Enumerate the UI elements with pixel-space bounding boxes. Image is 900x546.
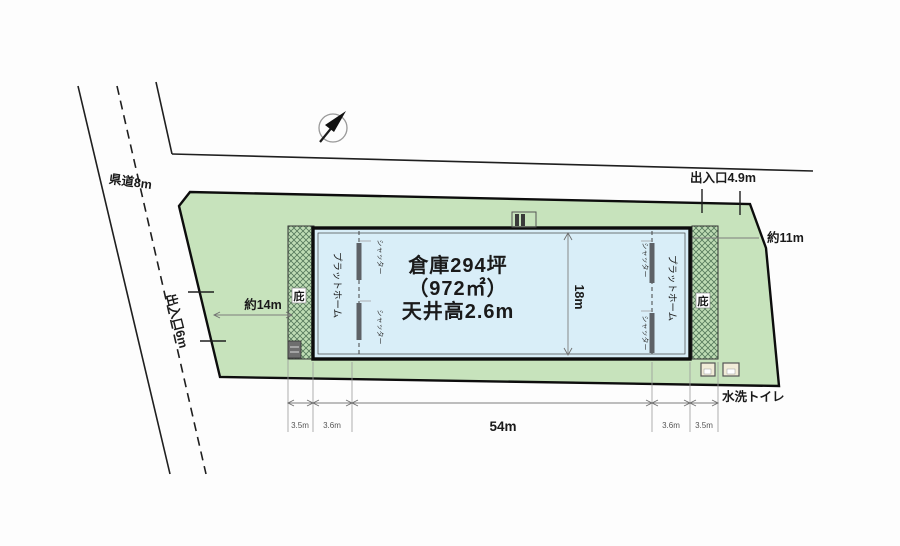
road-edge-west (78, 86, 170, 474)
platform-east-label: プラットホーム (666, 255, 677, 321)
dim-west-label: 約14m (244, 297, 282, 312)
road-edge-north (172, 154, 813, 171)
shutter-label: シャッター (641, 316, 650, 351)
dim-length-label: 54m (489, 419, 516, 434)
road-corner-edge (156, 82, 172, 154)
site-plan-page: 県道8m 出入口6m 出入口4.9m 約14m 約11m 54m 18m 3.5… (0, 0, 900, 546)
dim-depth-label: 18m (572, 284, 586, 309)
road-centerline (117, 86, 206, 474)
warehouse-title: 倉庫294坪 (407, 253, 507, 277)
road-label: 県道8m (108, 171, 153, 192)
dim-right-platform-label: 3.6m (662, 421, 680, 430)
shutter-label: シャッター (376, 240, 385, 275)
shutter-bar (650, 313, 655, 353)
shutter-label: シャッター (641, 243, 650, 278)
warehouse-ceiling-height: 天井高2.6m (402, 299, 515, 323)
toilet-label: 水洗トイレ (722, 389, 785, 404)
eave-west-label: 庇 (294, 289, 305, 303)
dim-left-platform-label: 3.6m (323, 421, 341, 430)
warehouse-area: （972㎡） (408, 276, 507, 300)
shutter-bar (650, 243, 655, 283)
eave-strip-east (692, 226, 718, 359)
entrance-west-label: 出入口6m (163, 292, 191, 350)
stairs-symbol (288, 341, 301, 358)
entrance-north-label: 出入口4.9m (690, 170, 756, 185)
shutter-bar (357, 303, 362, 340)
dim-right-eave-label: 3.5m (695, 421, 713, 430)
shutter-bar (357, 243, 362, 280)
site-plan-figure: 県道8m 出入口6m 出入口4.9m 約14m 約11m 54m 18m 3.5… (0, 0, 900, 546)
eave-east-label: 庇 (698, 294, 709, 308)
dim-east-label: 約11m (767, 230, 804, 245)
shutter-label: シャッター (376, 310, 385, 345)
platform-west-label: プラットホーム (331, 252, 342, 318)
dim-left-eave-label: 3.5m (291, 421, 309, 430)
north-arrow-icon (319, 111, 347, 142)
